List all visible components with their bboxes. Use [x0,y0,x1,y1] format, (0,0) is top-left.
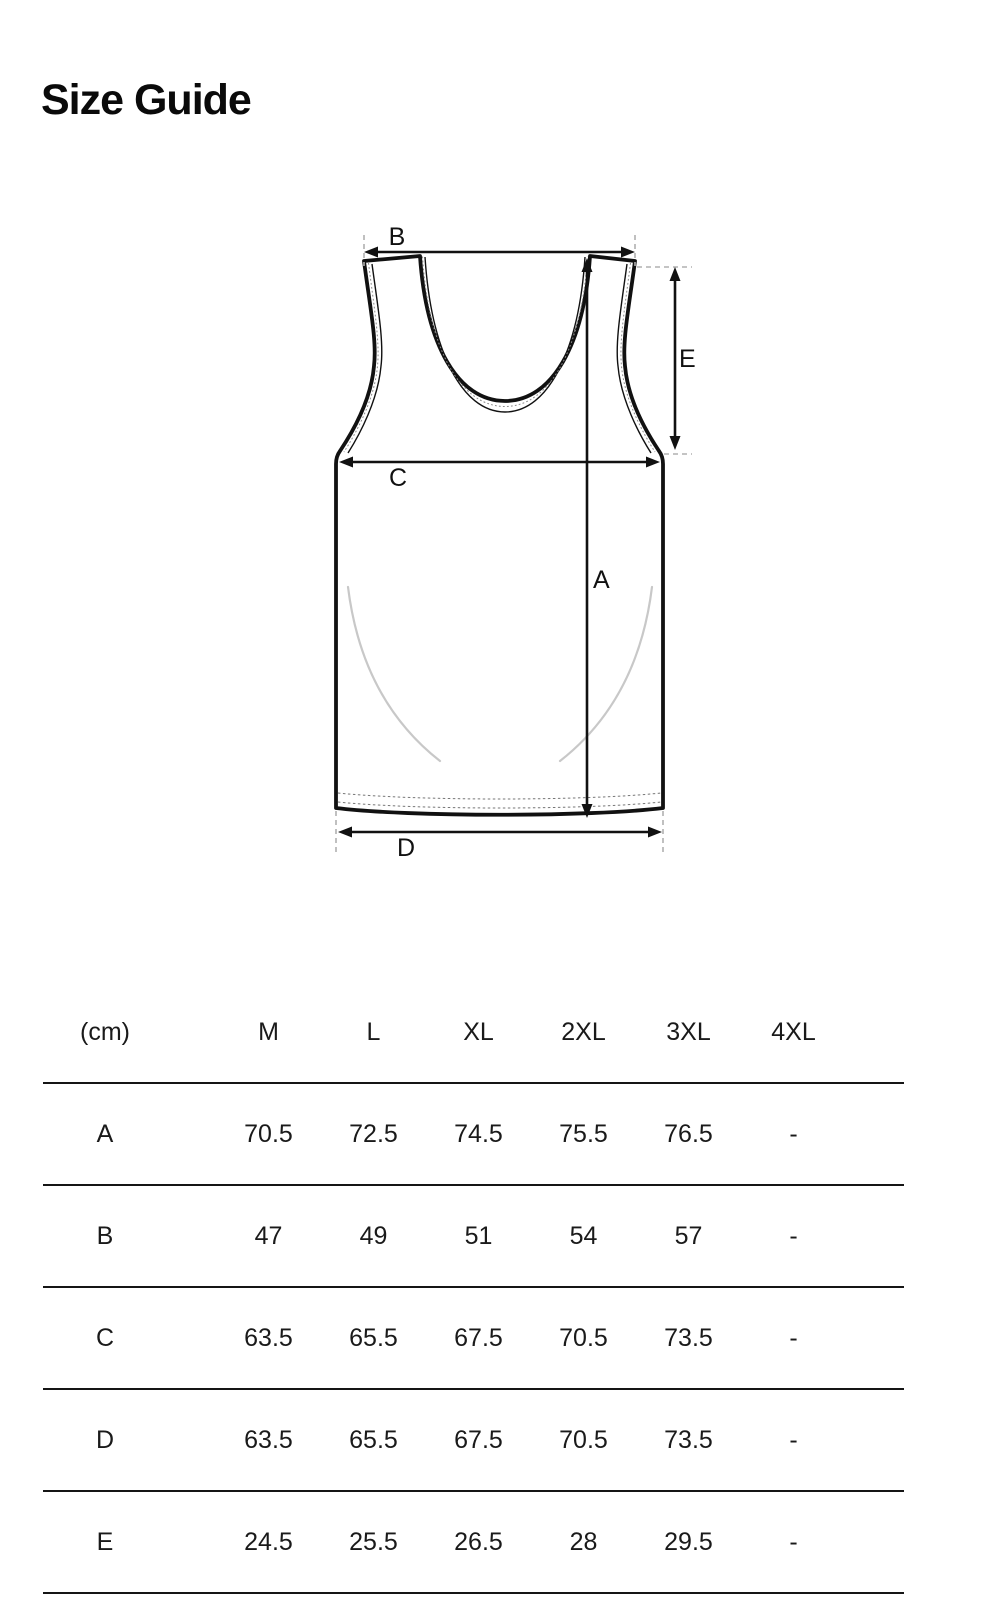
table-row-a: A 70.5 72.5 74.5 75.5 76.5 - [43,1084,904,1186]
column-header-4xl: 4XL [741,1018,846,1047]
size-value-cell: 70.5 [216,1120,321,1149]
size-value-cell: 65.5 [321,1324,426,1353]
size-value-cell: 75.5 [531,1120,636,1149]
tank-top-outline [336,256,663,815]
size-value-cell: 51 [426,1222,531,1251]
size-table: (cm) M L XL 2XL 3XL 4XL A 70.5 72.5 74.5… [43,982,904,1594]
size-value-cell: 54 [531,1222,636,1251]
size-guide-page: { "page": { "title": "Size Guide" }, "co… [0,0,1000,1605]
size-value-cell: 70.5 [531,1426,636,1455]
size-value-cell: 28 [531,1528,636,1557]
size-value-cell: 47 [216,1222,321,1251]
size-value-cell: 49 [321,1222,426,1251]
size-value-cell: - [741,1426,846,1455]
size-value-cell: 26.5 [426,1528,531,1557]
column-header-xl: XL [426,1018,531,1047]
size-value-cell: 63.5 [216,1426,321,1455]
table-row-b: B 47 49 51 54 57 - [43,1186,904,1288]
size-value-cell: 57 [636,1222,741,1251]
size-value-cell: 63.5 [216,1324,321,1353]
measurement-row-label: E [43,1528,216,1557]
label-a: A [593,566,610,594]
label-e: E [679,345,696,373]
column-header-3xl: 3XL [636,1018,741,1047]
column-header-2xl: 2XL [531,1018,636,1047]
size-value-cell: 74.5 [426,1120,531,1149]
measurement-arrow-d: D [336,811,663,862]
size-value-cell: 76.5 [636,1120,741,1149]
tank-top-measurement-figure: B E C A [300,195,720,875]
table-row-e: E 24.5 25.5 26.5 28 29.5 - [43,1492,904,1594]
label-c: C [389,464,407,492]
size-value-cell: 25.5 [321,1528,426,1557]
column-header-l: L [321,1018,426,1047]
size-value-cell: - [741,1324,846,1353]
size-value-cell: 67.5 [426,1426,531,1455]
size-value-cell: 73.5 [636,1324,741,1353]
size-value-cell: 67.5 [426,1324,531,1353]
size-value-cell: 70.5 [531,1324,636,1353]
label-d: D [397,834,415,862]
size-table-header-row: (cm) M L XL 2XL 3XL 4XL [43,982,904,1084]
size-value-cell: 72.5 [321,1120,426,1149]
measurement-row-label: B [43,1222,216,1251]
size-value-cell: - [741,1120,846,1149]
label-b: B [389,223,406,251]
size-value-cell: - [741,1528,846,1557]
measurement-row-label: A [43,1120,216,1149]
page-title: Size Guide [41,76,251,125]
measurement-row-label: D [43,1426,216,1455]
size-diagram: B E C A [300,195,720,875]
table-row-d: D 63.5 65.5 67.5 70.5 73.5 - [43,1390,904,1492]
size-value-cell: 24.5 [216,1528,321,1557]
size-value-cell: 29.5 [636,1528,741,1557]
size-value-cell: 65.5 [321,1426,426,1455]
size-value-cell: 73.5 [636,1426,741,1455]
column-header-m: M [216,1018,321,1047]
table-row-c: C 63.5 65.5 67.5 70.5 73.5 - [43,1288,904,1390]
unit-header-cell: (cm) [43,1018,216,1047]
size-value-cell: - [741,1222,846,1251]
measurement-row-label: C [43,1324,216,1353]
